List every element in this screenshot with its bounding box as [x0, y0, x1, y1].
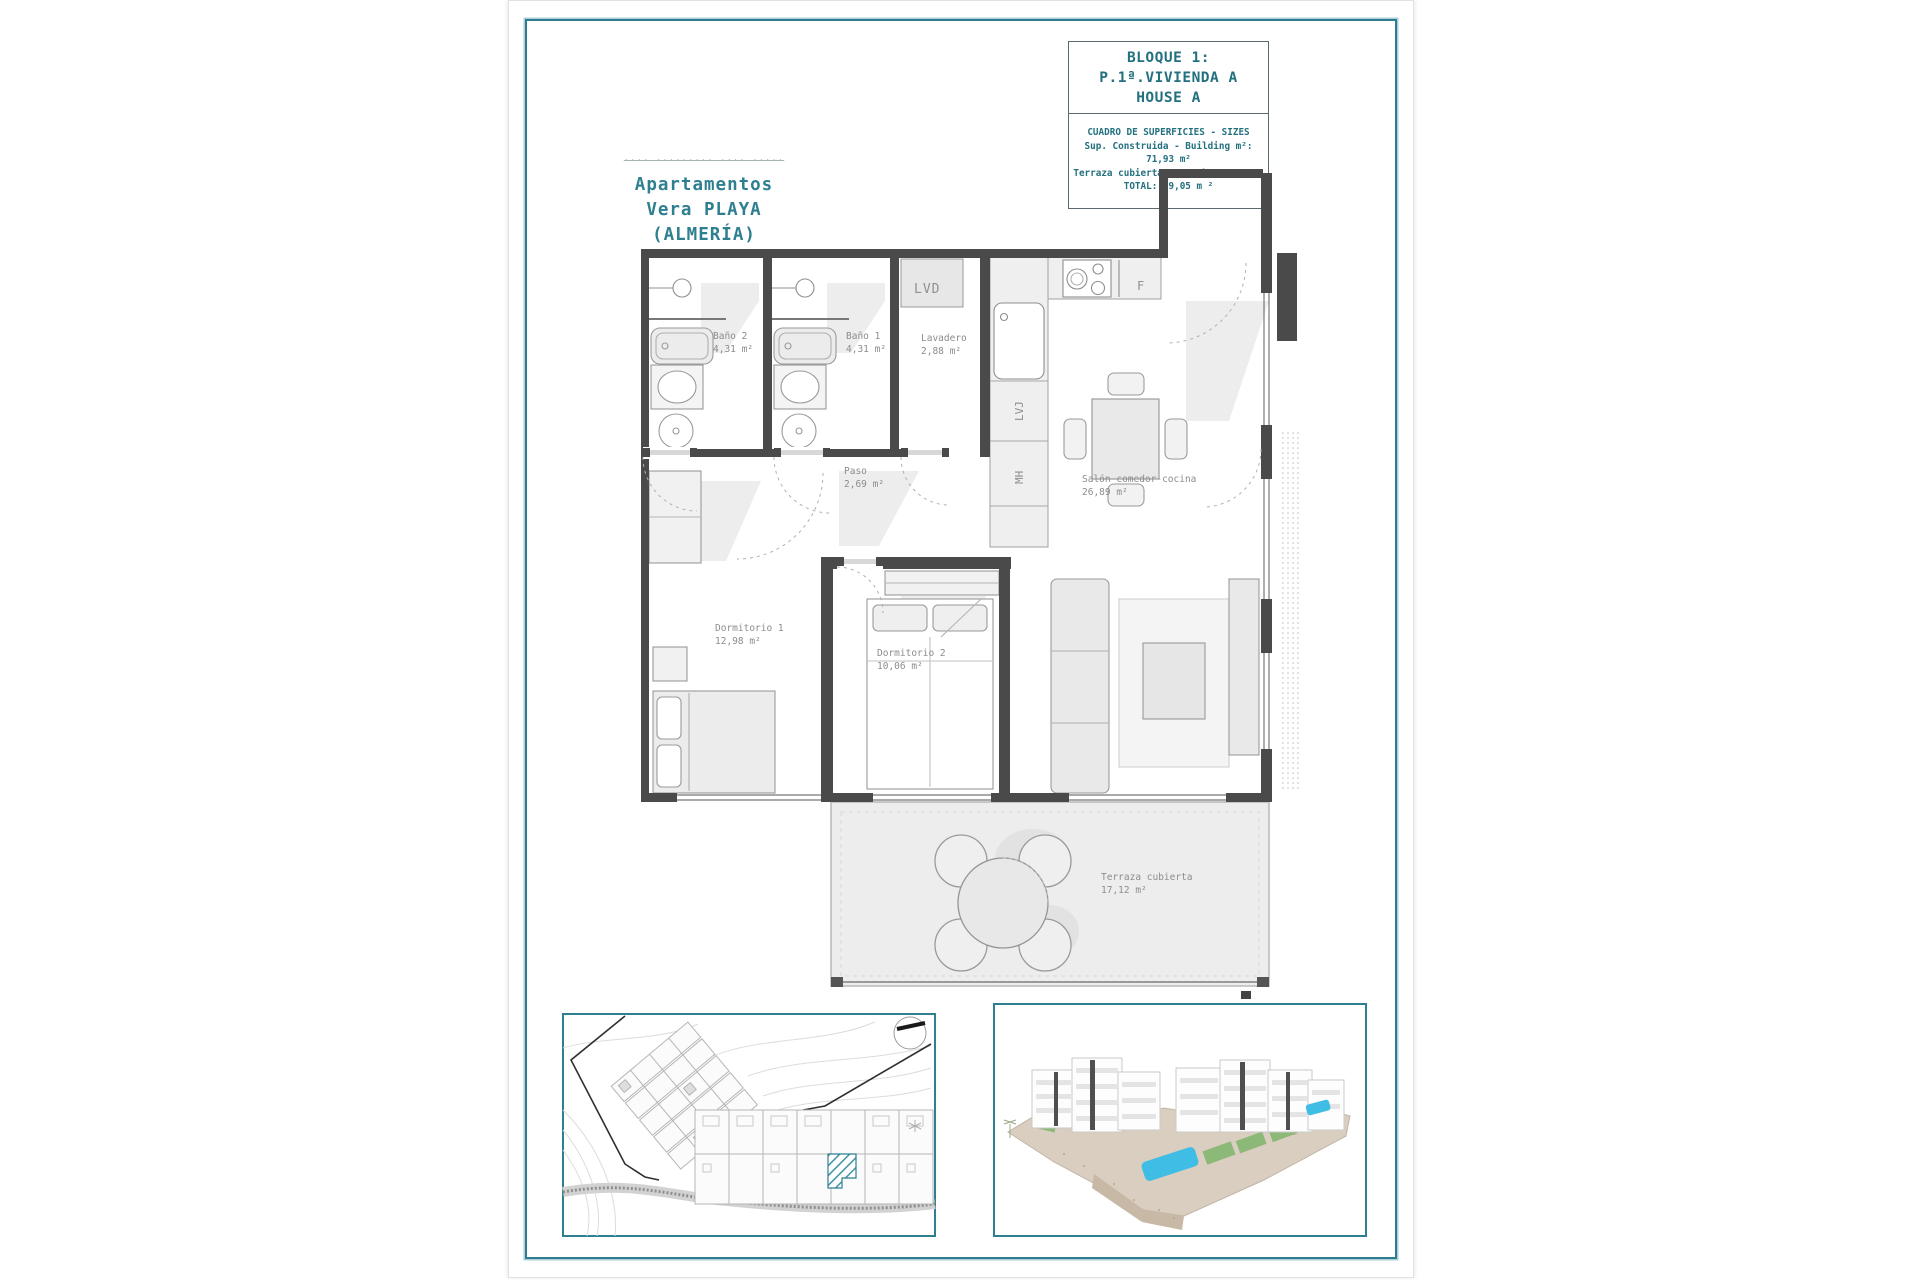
room-label-bano2: Baño 2 [713, 331, 747, 342]
render-box [994, 1004, 1366, 1236]
living-furniture [1051, 579, 1259, 793]
room-label-terraza: Terraza cubierta [1101, 872, 1193, 883]
room-area-dorm2: 10,06 m² [877, 661, 923, 672]
room-area-salon: 26,89 m² [1082, 487, 1128, 498]
room-label-salon: Salón-comedor-cocina [1082, 474, 1196, 485]
room-label-paso: Paso [844, 466, 867, 477]
fridge-label: F [1137, 279, 1144, 293]
site-unit-row-bottom [695, 1110, 933, 1204]
bedroom2-furniture [867, 571, 999, 789]
washer-label: LVD [914, 282, 940, 297]
room-label-dorm1: Dormitorio 1 [715, 623, 784, 634]
room-area-bano1: 4,31 m² [846, 344, 886, 355]
microwave-label: MH [1013, 471, 1026, 484]
room-area-lavadero: 2,88 m² [921, 346, 961, 357]
terrace: Terraza cubierta 17,12 m² [831, 802, 1269, 999]
room-label-bano1: Baño 1 [846, 331, 881, 342]
room-label-dorm2: Dormitorio 2 [877, 648, 946, 659]
room-area-bano2: 4,31 m² [713, 344, 753, 355]
room-area-paso: 2,69 m² [844, 479, 884, 490]
exterior-hatch [1279, 431, 1301, 791]
floor-plan-drawing: Terraza cubierta 17,12 m² [509, 1, 1413, 1277]
screenshot-canvas: ···· ········· ···· ····· Apartamentos V… [0, 0, 1920, 1280]
laundry-fixtures: LVD [901, 259, 963, 307]
room-area-terraza: 17,12 m² [1101, 885, 1147, 896]
site-plan-box [563, 1014, 935, 1236]
north-compass [894, 1017, 926, 1049]
dishwasher-label: LVJ [1013, 401, 1026, 421]
room-label-lavadero: Lavadero [921, 333, 967, 344]
plan-sheet: ···· ········· ···· ····· Apartamentos V… [508, 0, 1414, 1278]
room-area-dorm1: 12,98 m² [715, 636, 761, 647]
round-table [958, 858, 1048, 948]
